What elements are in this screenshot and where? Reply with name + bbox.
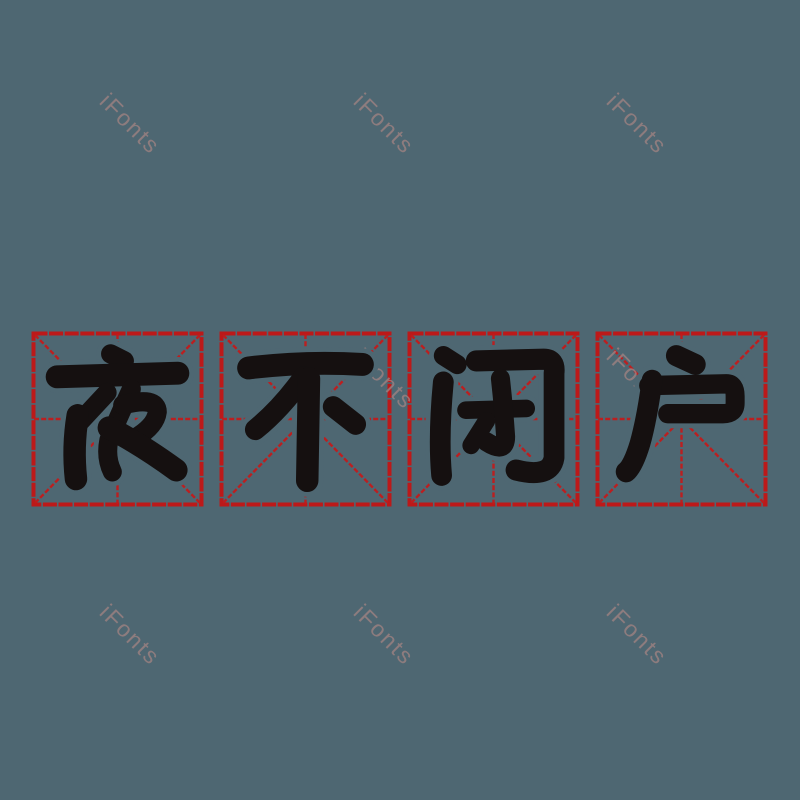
char-hu: 户	[595, 331, 768, 507]
char-bu: 不	[219, 331, 392, 507]
char-ye: 夜	[31, 331, 204, 507]
character-layer: 夜 不 闭	[0, 0, 800, 800]
image-canvas: iFonts iFonts iFonts iFonts iFonts iFont…	[0, 0, 800, 800]
char-bi: 闭	[407, 331, 580, 507]
